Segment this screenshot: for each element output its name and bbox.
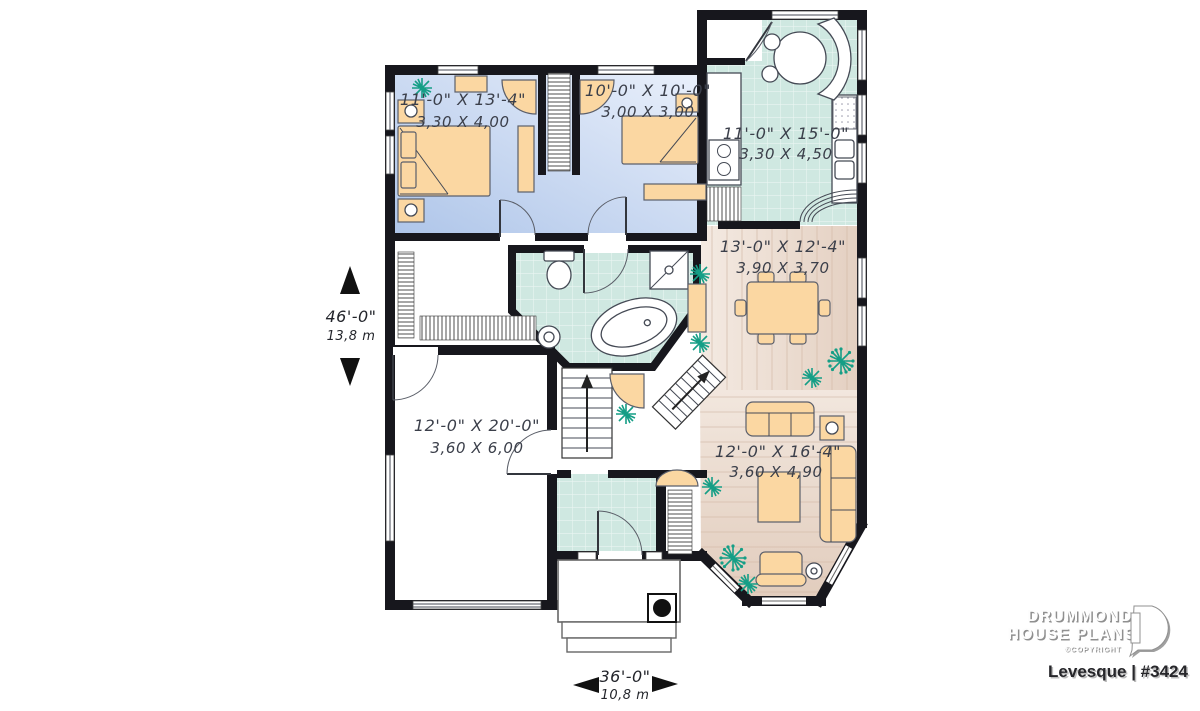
hall-closet-bottom: [420, 316, 536, 340]
dining-chair: [758, 333, 774, 344]
sofa: [746, 402, 814, 436]
arrow-down-icon: [340, 358, 360, 386]
arrow-up-icon: [340, 266, 360, 294]
bath-sink: [538, 326, 560, 348]
dining-label-metric: 3,90 X 3,70: [736, 259, 829, 277]
dining-label-imperial: 13'-0" X 12'-4": [720, 237, 846, 256]
brand-copyright: ©COPYRIGHT: [1065, 646, 1122, 654]
side-table: [820, 416, 844, 440]
pillow: [401, 132, 416, 158]
depth-imperial: 46'-0": [325, 307, 376, 326]
hall-corner-table: [610, 374, 644, 408]
pillow: [401, 162, 416, 188]
plant-starburst-icon: [802, 368, 822, 388]
drummond-d-icon: [1130, 606, 1170, 658]
porch: [558, 560, 680, 652]
bedroom2-label-imperial: 10'-0" X 10'-0": [585, 81, 711, 100]
arrow-left-icon: [573, 677, 599, 693]
dining-chair: [819, 300, 830, 316]
nightstand: [398, 199, 424, 222]
bedroom2-label-metric: 3,00 X 3,00: [601, 103, 694, 121]
dining-chair: [790, 333, 806, 344]
plant-starburst-icon: [738, 574, 758, 594]
dining-table: [747, 282, 818, 334]
garage-label-imperial: 12'-0" X 20'-0": [414, 416, 540, 435]
living-label-imperial: 12'-0" X 16'-4": [715, 442, 841, 461]
garage-rear-door: [393, 347, 438, 400]
entry-floor: [557, 474, 659, 555]
depth-metric: 13,8 m: [327, 329, 376, 344]
bed: [622, 116, 698, 164]
garage-label-metric: 3,60 X 6,00: [430, 439, 523, 457]
hall-closet-left: [398, 252, 414, 338]
brand-name-line2: HOUSE PLANS: [1008, 626, 1136, 643]
plant-dandelion-icon: [827, 347, 854, 374]
width-imperial: 36'-0": [599, 667, 650, 686]
round-table: [806, 563, 822, 579]
depth-dimension: 46'-0" 13,8 m: [325, 266, 376, 386]
plant-starburst-icon: [690, 264, 710, 284]
porch-step: [567, 638, 671, 652]
floorplan-page: 11'-0" X 13'-4" 3,30 X 4,00 10'-0" X 10'…: [0, 0, 1200, 711]
plant-starburst-icon: [702, 477, 722, 497]
porch-column: [648, 594, 676, 622]
dresser: [518, 126, 534, 192]
kitchen-pantry-shelves: [707, 187, 741, 221]
plant-starburst-icon: [690, 333, 710, 353]
bedroom1-label-imperial: 11'-0" X 13'-4": [400, 90, 526, 109]
bedroom1-label-metric: 3,30 X 4,00: [416, 113, 509, 131]
brand-logo: DRUMMOND DRUMMOND HOUSE PLANS HOUSE PLAN…: [1008, 606, 1190, 683]
main-stairs: [562, 368, 612, 458]
coat-closet: [668, 490, 692, 554]
shower: [650, 251, 688, 289]
armchair: [756, 552, 806, 586]
floor-plan: 11'-0" X 13'-4" 3,30 X 4,00 10'-0" X 10'…: [0, 0, 1200, 711]
porch-step: [562, 622, 676, 638]
width-dimension: 36'-0" 10,8 m: [573, 667, 678, 703]
brand-name-line1: DRUMMOND: [1027, 608, 1133, 625]
dining-chair: [735, 300, 746, 316]
arrow-right-icon: [652, 676, 678, 692]
dresser: [644, 184, 706, 200]
living-label-metric: 3,60 X 4,90: [729, 463, 822, 481]
garage-door: [413, 601, 541, 609]
plant-dandelion-icon: [719, 544, 746, 571]
width-metric: 10,8 m: [601, 688, 650, 703]
kitchen-label-imperial: 11'-0" X 15'-0": [723, 124, 849, 143]
plan-id: Levesque | #3424: [1048, 662, 1188, 681]
kitchen-label-metric: 3,30 X 4,50: [739, 145, 832, 163]
stove: [709, 140, 739, 180]
buffet: [688, 284, 706, 332]
plant-starburst-icon: [616, 404, 636, 424]
bedroom-closet: [548, 73, 570, 171]
